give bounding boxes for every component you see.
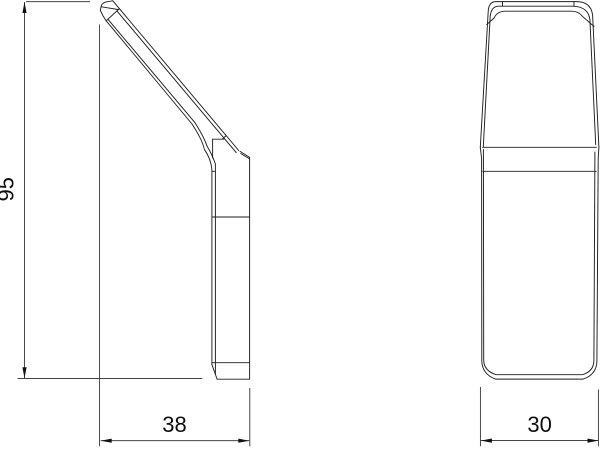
svg-text:30: 30 xyxy=(527,412,551,437)
svg-text:38: 38 xyxy=(162,412,186,437)
svg-text:95: 95 xyxy=(0,177,19,201)
